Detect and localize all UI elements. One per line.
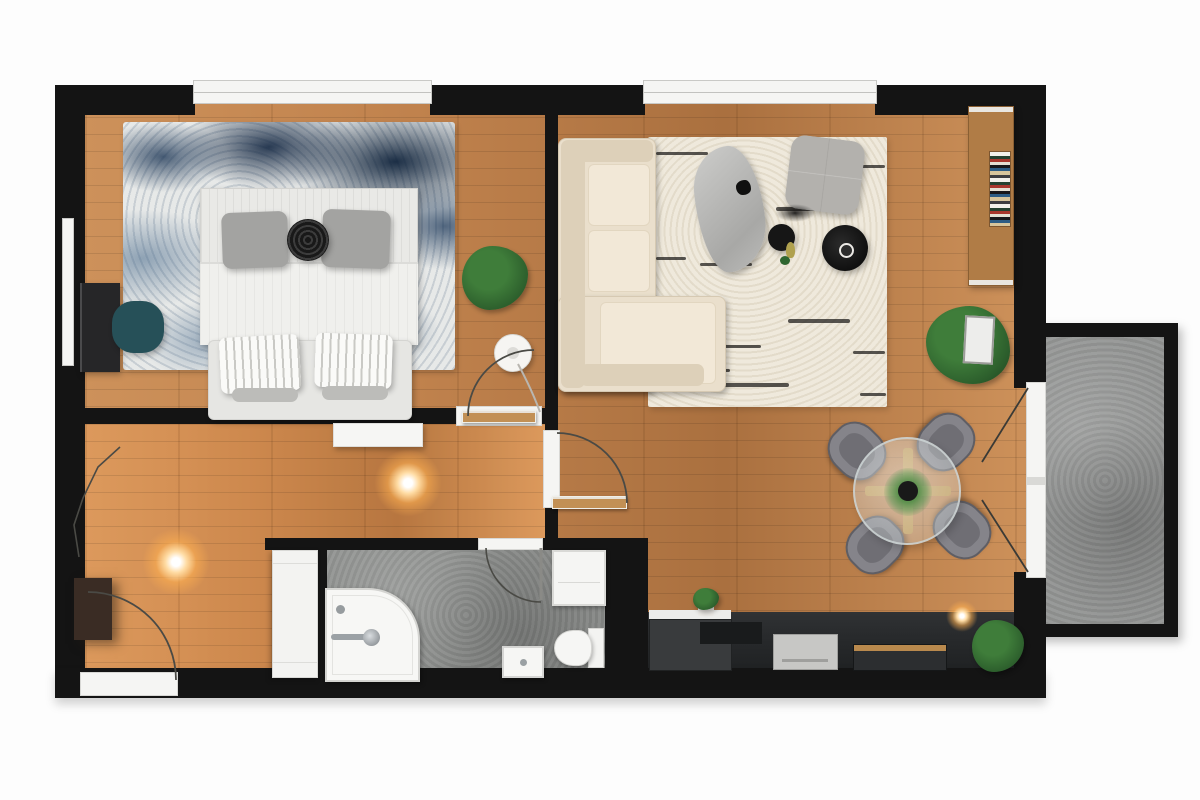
side-table-ring-decor: [839, 243, 854, 258]
island-wood-top: [854, 645, 946, 651]
wall-bedroom-living-divider: [545, 108, 558, 432]
bathtub-drain: [336, 605, 345, 614]
bathroom-sink: [502, 646, 544, 678]
wall-bathroom-kitchen: [605, 550, 648, 698]
wall-right-upper: [1014, 85, 1046, 388]
round-black-pillow: [287, 219, 329, 261]
washing-machine-panel: [558, 582, 600, 583]
kitchen-ceiling-light: [946, 600, 978, 632]
sofa-armrest-bottom: [580, 364, 704, 386]
bathroom-door-threshold: [478, 538, 543, 550]
centerpiece-pot: [898, 481, 918, 501]
entry-door-leaf: [74, 578, 112, 640]
foot-pillow-right: [314, 333, 393, 390]
hallway-console: [333, 423, 423, 447]
wall-top-middle: [430, 85, 645, 115]
sofa-seat-cushion-2: [588, 230, 650, 292]
balcony-door-frame: [1026, 382, 1046, 578]
hall-tall-cabinet: [272, 550, 318, 678]
books-stack: [989, 151, 1011, 227]
floor-lamp-shade: [494, 334, 532, 372]
kitchen-counter-white: [649, 610, 731, 619]
wall-bottom: [55, 668, 1046, 698]
kitchen-island: [853, 644, 947, 671]
radiator: [62, 218, 74, 366]
kitchen-appliance: [773, 634, 838, 670]
kitchen-dark-panel: [700, 622, 762, 644]
cabinet-seam-bottom: [273, 662, 317, 663]
appliance-handle: [782, 659, 828, 662]
washing-machine: [552, 550, 606, 606]
coffee-table-decor: [736, 180, 751, 195]
bathtub-faucet-knob: [363, 629, 380, 646]
rug-streak: [853, 351, 885, 354]
sofa-back-cushions: [561, 142, 585, 388]
wall-bathroom-top-left: [265, 538, 478, 550]
bookshelf-edge-top: [969, 107, 1013, 112]
sofa-armrest-top: [561, 140, 653, 162]
living-plant-planter: [963, 315, 995, 365]
balcony-floor: [1046, 337, 1164, 624]
hallway-ceiling-light-2: [142, 528, 210, 596]
bed-pillow-left: [221, 211, 289, 269]
bed-pillow-right: [321, 209, 391, 269]
foot-pillow-left: [219, 334, 302, 394]
hallway-ceiling-light-1: [374, 449, 442, 517]
floor-plan-render: [0, 0, 1200, 800]
rug-streak: [788, 319, 850, 323]
rug-streak: [656, 257, 686, 260]
bolster-roll-left: [232, 388, 298, 402]
bed-duvet: [200, 262, 418, 345]
teal-desk-chair: [112, 301, 164, 353]
living-room-door-leaf: [552, 496, 627, 509]
rug-streak: [860, 393, 886, 396]
decor-greenery: [780, 256, 790, 265]
balcony-door-mullion: [1027, 477, 1045, 485]
cabinet-seam-top: [273, 563, 317, 564]
rug-streak: [656, 152, 708, 155]
toilet-bowl: [554, 630, 592, 666]
bedroom-window: [193, 80, 432, 104]
bedroom-door-leaf: [462, 410, 536, 423]
sofa-seat-cushion-1: [588, 164, 650, 226]
floor-lamp-bulb: [507, 347, 519, 359]
rug-dark-tuft: [775, 204, 815, 222]
living-room-window: [643, 80, 877, 104]
bookshelf: [968, 106, 1014, 286]
sink-faucet: [520, 659, 527, 666]
bookshelf-edge-bottom: [969, 280, 1013, 285]
wall-bathroom-top-right: [543, 538, 648, 550]
entry-door-threshold: [80, 672, 178, 696]
bolster-roll-right: [322, 386, 388, 400]
